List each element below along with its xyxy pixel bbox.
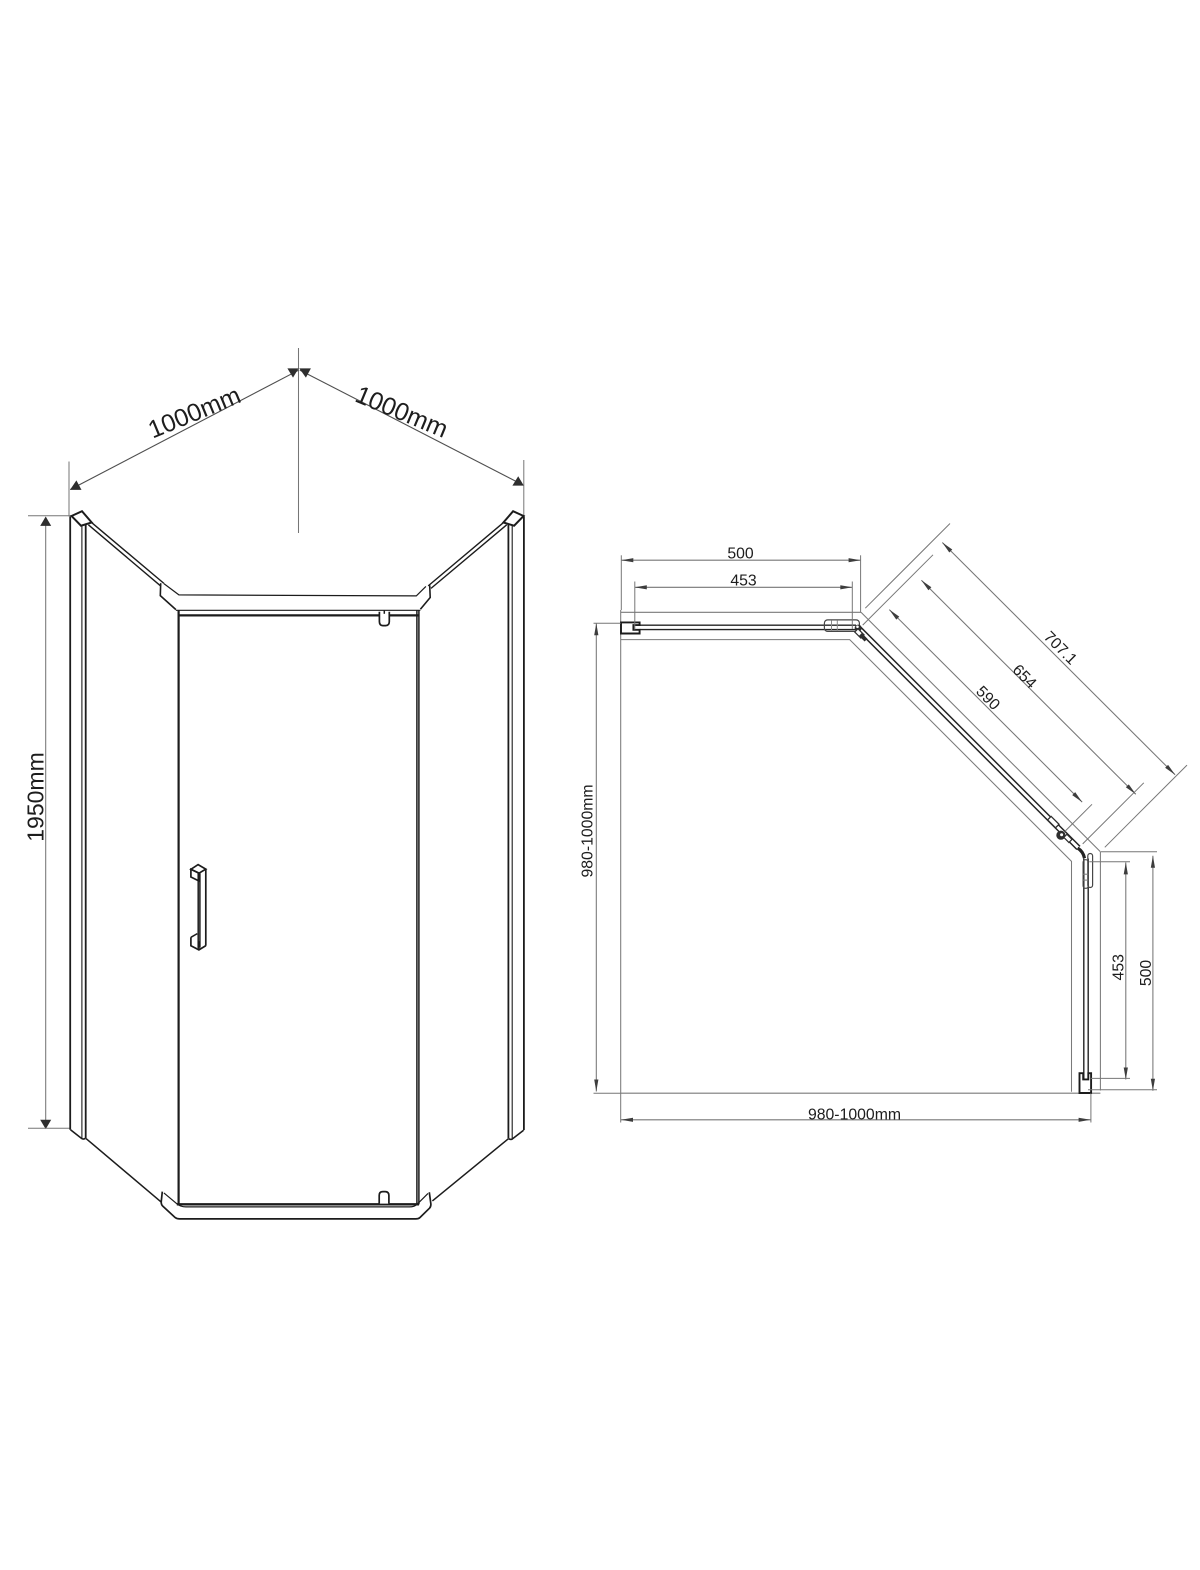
svg-text:980-1000mm: 980-1000mm — [808, 1107, 901, 1124]
svg-text:500: 500 — [1138, 960, 1155, 987]
svg-text:453: 453 — [1110, 954, 1127, 981]
svg-text:500: 500 — [727, 546, 754, 563]
svg-text:453: 453 — [730, 572, 757, 589]
svg-text:980-1000mm: 980-1000mm — [580, 784, 597, 877]
svg-text:1950mm: 1950mm — [23, 752, 49, 841]
